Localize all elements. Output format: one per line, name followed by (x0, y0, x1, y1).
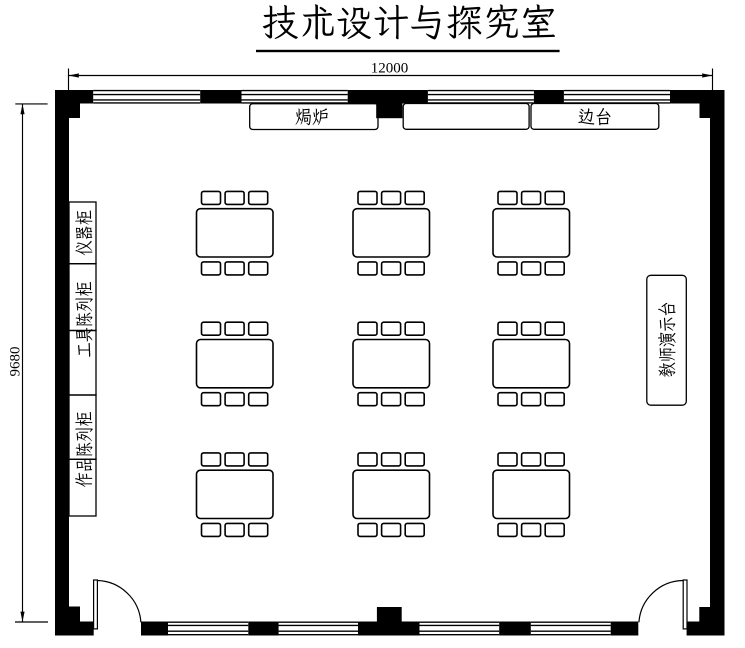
svg-text:9680: 9680 (7, 347, 23, 377)
svg-text:12000: 12000 (371, 61, 409, 77)
